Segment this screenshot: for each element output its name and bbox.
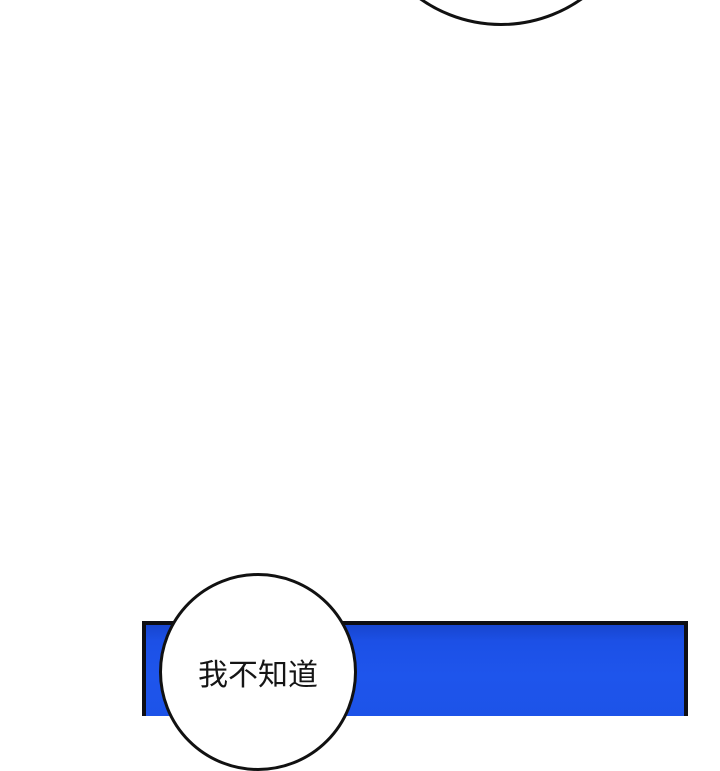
speech-bubble-text: 我不知道	[159, 658, 357, 694]
comic-page: 我不知道	[0, 0, 720, 700]
speech-bubble-top-partial	[360, 0, 642, 26]
